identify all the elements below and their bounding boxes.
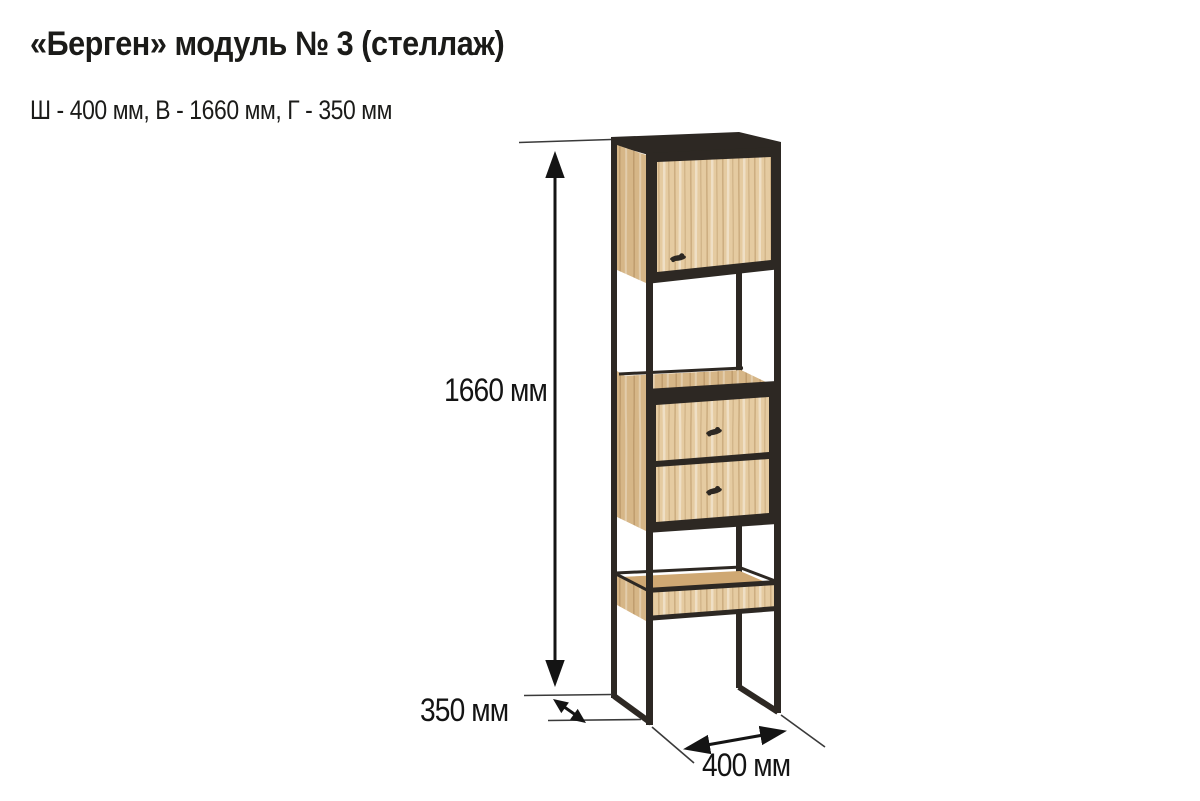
right-floor-runner	[739, 687, 778, 712]
drawer-unit	[617, 368, 777, 533]
cabinet-door	[657, 157, 771, 272]
shelving-unit-illustration	[611, 132, 781, 725]
height-extension-line-top	[519, 140, 611, 143]
depth-dimension-arrow	[553, 699, 586, 723]
cabinet-side-panel	[617, 145, 646, 283]
bottom-shelf-tray	[616, 567, 778, 621]
diagram-page: «Берген» модуль № 3 (стеллаж) Ш - 400 мм…	[0, 0, 1200, 801]
height-dimension-label: 1660 мм	[415, 372, 547, 409]
width-leader-line-left	[652, 727, 694, 763]
depth-extension-line-front	[548, 720, 641, 721]
furniture-dimension-drawing	[0, 0, 1200, 801]
width-dimension-label: 400 мм	[702, 747, 790, 784]
width-dimension-arrow	[687, 732, 783, 749]
depth-extension-line-back	[524, 695, 612, 696]
metal-leg-front-left	[646, 146, 653, 725]
metal-leg-back-left	[611, 138, 617, 698]
depth-dimension-label: 350 мм	[420, 692, 508, 729]
upper-cabinet	[617, 145, 781, 284]
metal-leg-front-right	[774, 142, 781, 713]
width-leader-line-right	[781, 715, 825, 747]
drawer-top-front	[656, 397, 769, 461]
drawer-unit-side-panel	[617, 371, 646, 531]
